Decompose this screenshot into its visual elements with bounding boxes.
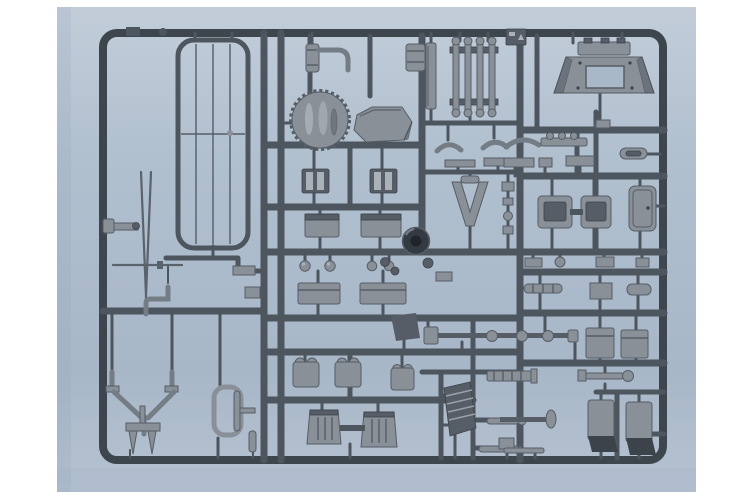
runner-tab <box>126 27 140 36</box>
dark-wedge <box>391 313 420 341</box>
side-strip <box>426 43 436 109</box>
photo-page: Product photo of a grey injection-molded… <box>0 0 750 500</box>
clamp-bracket-left <box>302 169 329 193</box>
road-wheel <box>403 228 430 255</box>
tool-box-left <box>298 283 340 304</box>
hull-plate <box>354 107 412 142</box>
blade-node <box>157 261 163 269</box>
tool-box-right <box>360 283 406 304</box>
canister <box>406 44 425 71</box>
sprue-photo: Product photo of a grey injection-molded… <box>0 0 750 500</box>
backdrop-bottom-shade <box>57 468 696 492</box>
fuel-tank-right <box>626 402 656 455</box>
stowage-box-left <box>305 214 339 237</box>
grille-node <box>227 130 233 136</box>
door-panel <box>629 186 656 231</box>
marking-tab <box>506 29 526 45</box>
pill-fitting <box>620 148 647 159</box>
backdrop-left-shade <box>57 7 71 492</box>
stowage-bin-right <box>621 330 648 358</box>
small-rod <box>249 431 256 452</box>
clamp-bracket-right <box>370 169 397 193</box>
crew-seat-3 <box>391 365 414 391</box>
seat-cushion-left <box>307 410 341 444</box>
louver-panel <box>444 382 476 436</box>
crew-seat-2 <box>335 358 361 387</box>
stowage-box-right <box>361 214 401 237</box>
bench-seat-left <box>538 196 572 228</box>
finned-rod <box>487 369 537 383</box>
crew-seat-1 <box>293 358 319 387</box>
runner-knob <box>159 28 167 36</box>
stowage-bin-left <box>586 328 614 358</box>
fuel-tank-left <box>588 400 618 452</box>
